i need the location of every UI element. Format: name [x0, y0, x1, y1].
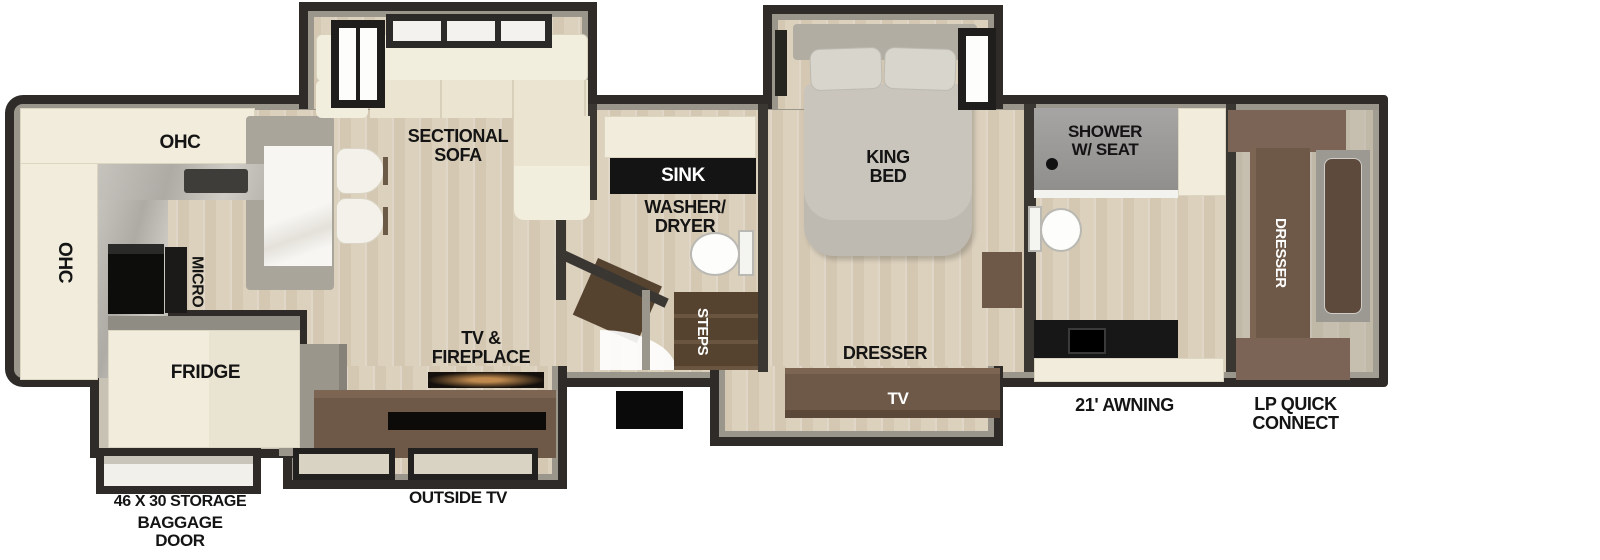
label-washer-dryer: WASHER/ DRYER [612, 196, 758, 238]
bedroom-window [958, 28, 996, 110]
wardrobe-mirror [1324, 158, 1362, 314]
label-ohc-left: OHC [51, 215, 77, 310]
label-outside-tv: OUTSIDE TV [393, 488, 523, 508]
bath2-sink [1068, 328, 1106, 354]
storage-compartment [96, 448, 261, 494]
nightstand [982, 252, 1022, 308]
range-cooktop [108, 244, 164, 314]
label-tv-fireplace: TV & FIREPLACE [406, 328, 556, 368]
bath2-vanity [1034, 320, 1178, 360]
exterior-compartment-door [408, 448, 538, 480]
label-dresser-bedroom: DRESSER [810, 344, 960, 364]
bar-stool [336, 198, 384, 244]
label-lp-quick-connect: LP QUICK CONNECT [1228, 394, 1363, 434]
label-steps: STEPS [690, 296, 714, 368]
exterior-compartment-door [293, 448, 395, 480]
label-sectional-sofa: SECTIONAL SOFA [388, 126, 528, 166]
closet-top-cabinet [1228, 110, 1346, 152]
kitchen-island-countertop [264, 146, 332, 266]
stool-leg [383, 207, 388, 235]
steps [674, 292, 758, 370]
label-tv-bedroom: TV [863, 388, 933, 410]
toilet2 [1040, 208, 1082, 252]
label-micro: MICRO [184, 246, 208, 318]
label-storage: 46 X 30 STORAGE [95, 492, 265, 512]
bath2-vanity-cabinet [1034, 358, 1224, 382]
label-ohc-top: OHC [130, 132, 230, 154]
pillow [883, 47, 956, 91]
sofa-slideout-window [331, 20, 385, 108]
bath-sink-cabinet [604, 116, 756, 158]
fridge [108, 330, 300, 448]
label-sink: SINK [610, 163, 756, 189]
sectional-sofa-seats [370, 80, 588, 118]
label-shower-seat: SHOWER W/ SEAT [1040, 122, 1170, 160]
skylight [386, 14, 552, 48]
kitchen-sink [184, 169, 248, 193]
pillow [809, 47, 882, 91]
bedroom-window-left [775, 30, 787, 96]
steps-half-wall [642, 290, 650, 370]
bath-bedroom-wall [758, 104, 768, 372]
bath2-linen-cabinet [1178, 108, 1226, 196]
label-dresser-rear: DRESSER [1266, 200, 1294, 305]
bar-stool [336, 148, 384, 194]
label-baggage-door: BAGGAGE DOOR [105, 512, 255, 552]
label-awning: 21' AWNING [1052, 396, 1197, 416]
rv-floorplan: OHC OHC MICRO FRIDGE SECTIONAL SOFA TV &… [0, 0, 1600, 560]
fireplace [428, 372, 544, 388]
entry-step-mat [616, 391, 683, 429]
label-fridge: FRIDGE [138, 362, 273, 384]
label-king-bed: KING BED [838, 146, 938, 188]
shower-curb [1034, 190, 1178, 198]
closet-bottom-cabinet [1236, 338, 1350, 380]
toilet [690, 232, 740, 276]
living-tv [388, 412, 546, 430]
